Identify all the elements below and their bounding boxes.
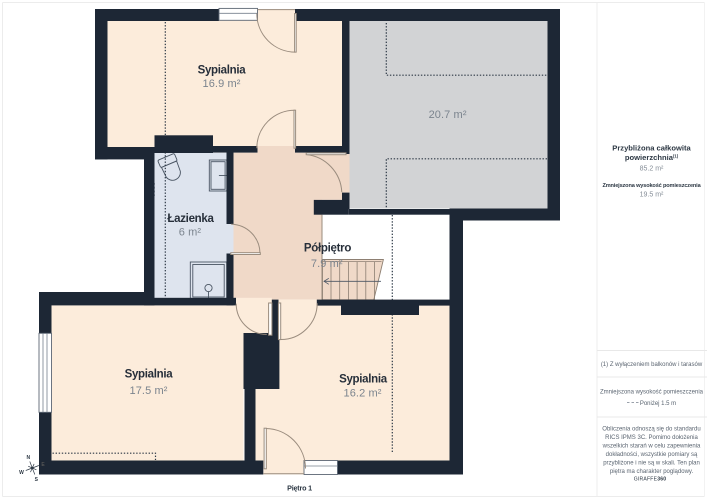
svg-text:Przybliżona całkowita: Przybliżona całkowita [612, 144, 691, 153]
svg-text:Poniżej 1.5 m: Poniżej 1.5 m [640, 401, 676, 407]
svg-text:19.5 m²: 19.5 m² [640, 192, 664, 199]
svg-text:(1) Z wyłączeniem balkonów i t: (1) Z wyłączeniem balkonów i tarasów [601, 362, 703, 368]
svg-text:Półpiętro: Półpiętro [304, 243, 351, 255]
svg-text:RICS IPMS 3C. Pomimo dołożenia: RICS IPMS 3C. Pomimo dołożenia [605, 435, 698, 441]
svg-text:Sypialnia: Sypialnia [125, 368, 174, 380]
svg-text:6 m²: 6 m² [179, 226, 202, 238]
svg-text:20.7 m²: 20.7 m² [429, 109, 467, 121]
svg-text:Sypialnia: Sypialnia [339, 373, 388, 385]
svg-text:Łazienka: Łazienka [167, 213, 214, 225]
svg-text:GIRAFFE360: GIRAFFE360 [634, 476, 667, 482]
svg-text:Piętro 1: Piętro 1 [287, 484, 312, 493]
svg-text:16.9 m²: 16.9 m² [203, 78, 241, 90]
svg-text:85.2 m²: 85.2 m² [640, 166, 664, 173]
svg-text:Zmniejszona wysokość pomieszcz: Zmniejszona wysokość pomieszczenia [600, 390, 704, 396]
svg-text:Zmniejszona wysokość pomieszcz: Zmniejszona wysokość pomieszczenia [602, 183, 701, 189]
svg-text:powierzchnia(1): powierzchnia(1) [625, 153, 679, 162]
svg-text:Sypialnia: Sypialnia [198, 65, 247, 77]
svg-text:piętra ma charakter poglądowy.: piętra ma charakter poglądowy. [610, 469, 694, 475]
svg-text:wszelkich starań w celu zapewn: wszelkich starań w celu zapewnienia [602, 444, 701, 450]
svg-text:Obliczenia odnoszą się do stan: Obliczenia odnoszą się do standardu [602, 427, 700, 433]
svg-text:dokładności, wszystkie pomiary: dokładności, wszystkie pomiary są [606, 452, 698, 458]
svg-text:7.9 m²: 7.9 m² [311, 258, 343, 270]
svg-text:N: N [27, 455, 31, 461]
svg-text:przybliżone i nie są w skali.: przybliżone i nie są w skali. Ten plan [603, 461, 700, 467]
svg-text:16.2 m²: 16.2 m² [344, 388, 382, 400]
svg-text:W: W [19, 470, 24, 476]
svg-text:17.5 m²: 17.5 m² [130, 385, 168, 397]
